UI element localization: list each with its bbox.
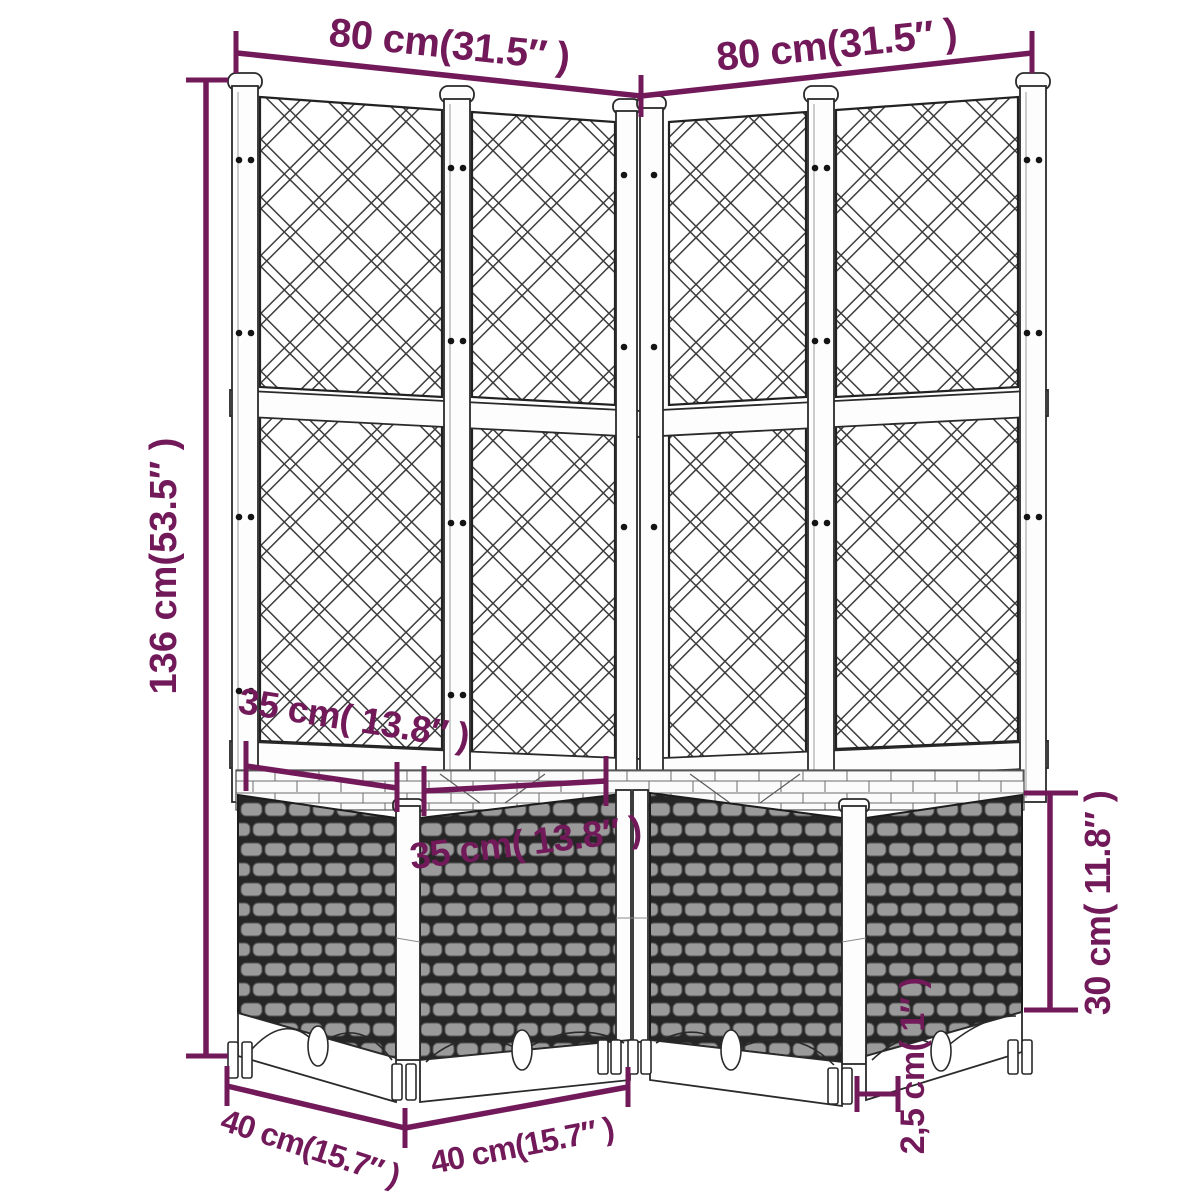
rattan-face-right (866, 795, 1022, 1056)
lattice-panel (836, 97, 1018, 397)
dimension-label-40-left: 40 cm(15.7″ ) (217, 1102, 405, 1194)
lattice-panel (472, 112, 615, 405)
product-dimension-diagram: 80 cm(31.5″ ) 80 cm(31.5″ ) 136 cm(53.5″… (0, 0, 1200, 1200)
trellis-corner-post (616, 111, 637, 785)
lattice-panel (669, 424, 806, 760)
diagram-canvas: 80 cm(31.5″ ) 80 cm(31.5″ ) 136 cm(53.5″… (0, 0, 1200, 1200)
rattan-face-front-right (650, 793, 842, 1062)
dimension-label-2-5: 2,5 cm( 1″ ) (894, 978, 932, 1155)
trellis-post (808, 99, 834, 803)
lattice-panel (669, 112, 806, 405)
trellis (228, 73, 1050, 803)
trellis-corner-post (640, 108, 663, 785)
dimension-label-136: 136 cm(53.5″ ) (143, 438, 185, 695)
lattice-panel (472, 424, 615, 760)
planter-corner-post (842, 806, 866, 1064)
dimension-label-80-right: 80 cm(31.5″ ) (714, 11, 959, 80)
lattice-panel (836, 413, 1018, 749)
trellis-post (1020, 86, 1046, 802)
trellis-post (444, 99, 470, 803)
lattice-panel (260, 97, 442, 397)
rattan-face-left (238, 795, 396, 1058)
dimension-label-30: 30 cm( 11.8″ ) (1077, 791, 1118, 1015)
